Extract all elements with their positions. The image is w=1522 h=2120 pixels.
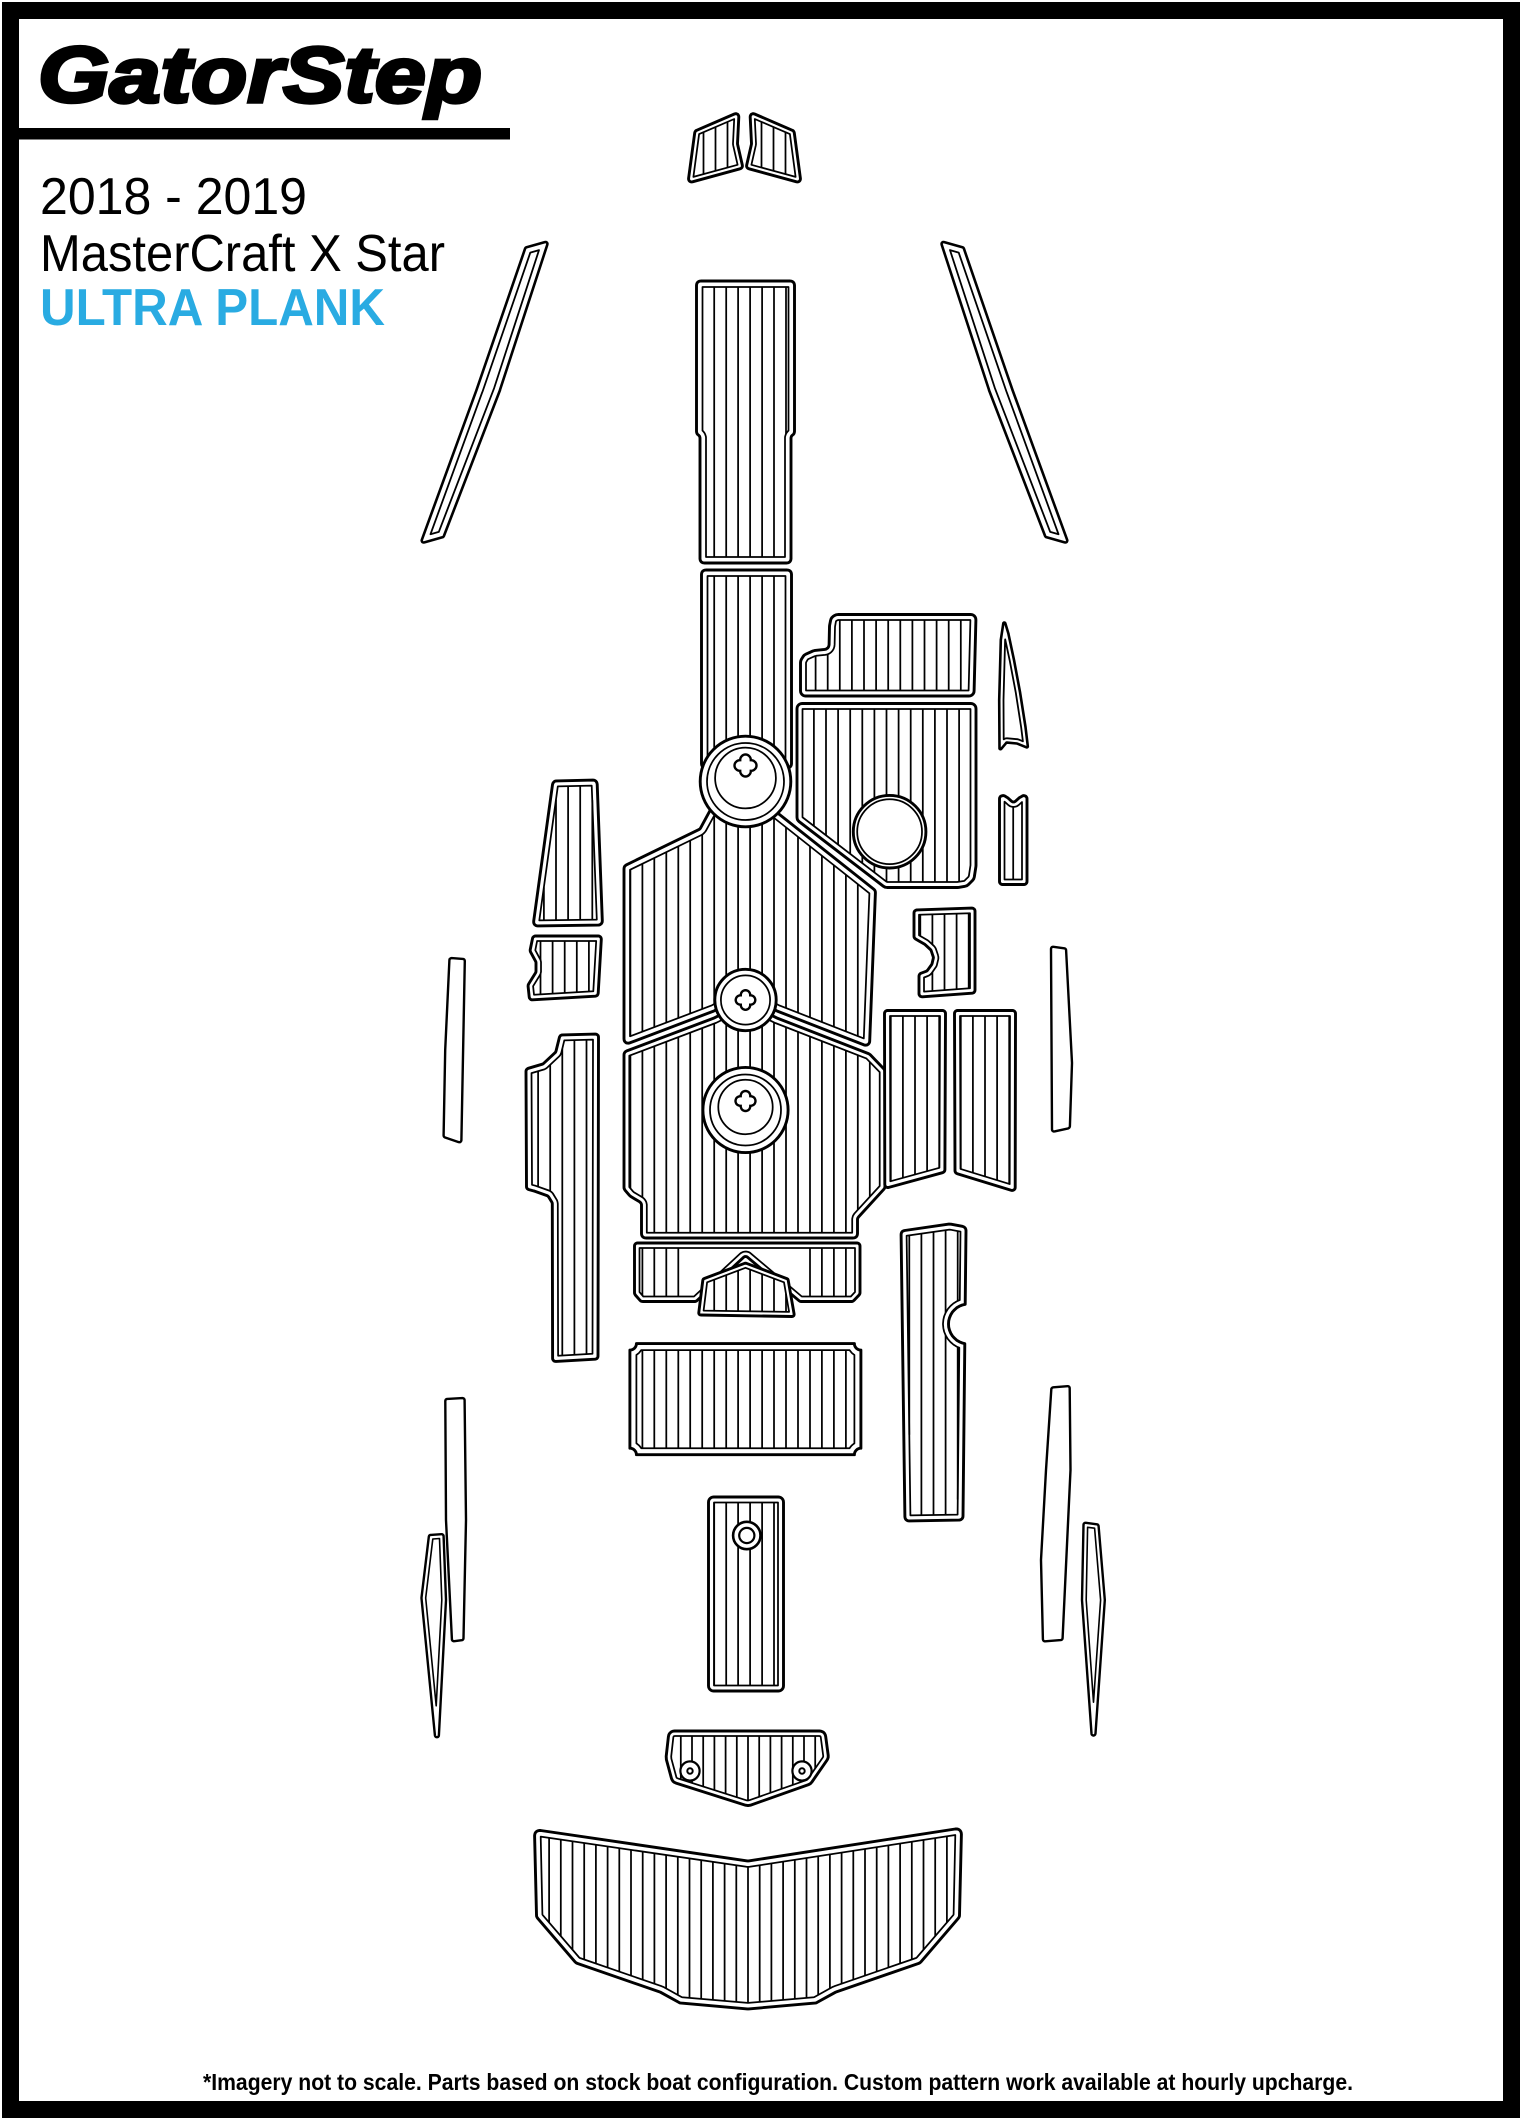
svg-text:ULTRA PLANK: ULTRA PLANK bbox=[40, 279, 385, 337]
svg-text:GatorStep: GatorStep bbox=[38, 30, 482, 119]
svg-text:MasterCraft X Star: MasterCraft X Star bbox=[40, 225, 445, 283]
svg-text:2018 - 2019: 2018 - 2019 bbox=[40, 168, 307, 226]
svg-text:*Imagery not to scale. Parts b: *Imagery not to scale. Parts based on st… bbox=[203, 2069, 1353, 2095]
